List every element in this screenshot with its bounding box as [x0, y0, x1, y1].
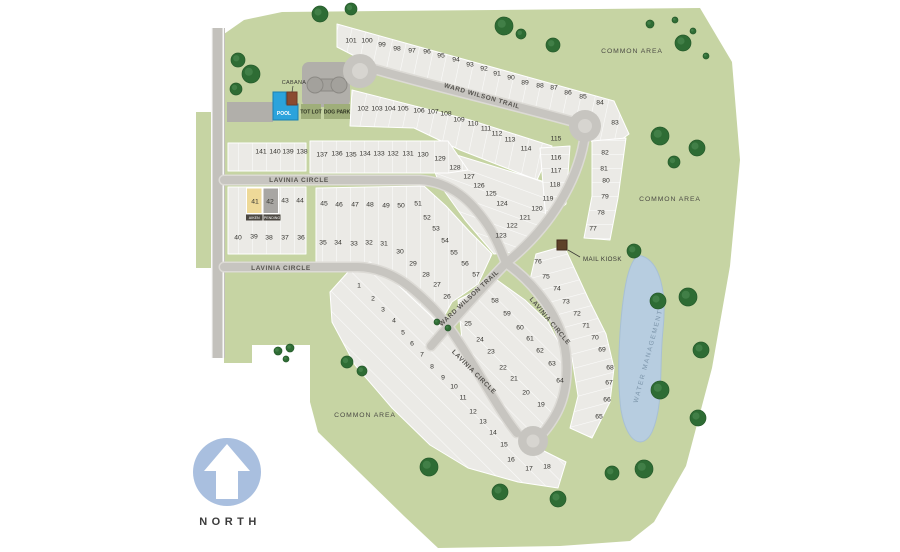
lot-number-130: 130: [417, 151, 429, 158]
lot-number-22: 22: [499, 364, 507, 371]
lot-number-89: 89: [521, 79, 529, 86]
lot-number-110: 110: [468, 120, 479, 127]
lot-number-109: 109: [453, 116, 465, 123]
lot-number-75: 75: [542, 273, 550, 280]
lot-number-83: 83: [611, 119, 619, 126]
lot-number-56: 56: [461, 260, 469, 267]
lot-number-63: 63: [548, 360, 556, 367]
tree-icon: [550, 491, 566, 507]
lot-number-134: 134: [359, 150, 371, 157]
mail-kiosk-icon: [557, 240, 567, 250]
tree-icon: [689, 140, 705, 156]
tree-icon: [627, 244, 641, 258]
lot-number-69: 69: [598, 346, 606, 353]
lot-41-tag-label: AIKEN: [249, 216, 260, 220]
lot-number-107: 107: [427, 108, 439, 115]
lot-number-5: 5: [401, 329, 405, 336]
lot-number-103: 103: [371, 105, 383, 112]
lot-number-9: 9: [441, 374, 445, 381]
lot-number-21: 21: [510, 375, 518, 382]
lot-number-12: 12: [469, 408, 477, 415]
lot-number-68: 68: [606, 364, 614, 371]
site-plan-svg: AIKEN PENDING WATER MANAGEMENT POOL CABA…: [0, 0, 900, 552]
lot-number-32: 32: [365, 239, 373, 246]
lot-number-136: 136: [331, 150, 343, 157]
lot-number-57: 57: [472, 271, 480, 278]
tree-icon: [341, 356, 353, 368]
lot-number-67: 67: [605, 379, 613, 386]
tree-icon: [651, 381, 669, 399]
tot-lot-label: TOT LOT: [300, 110, 321, 116]
lavinia-circle-label-upper: LAVINIA CIRCLE: [269, 177, 329, 184]
lot-number-48: 48: [366, 201, 374, 208]
lot-number-3: 3: [381, 306, 385, 313]
lot-number-65: 65: [595, 413, 603, 420]
lot-number-20: 20: [522, 389, 530, 396]
lot-number-38: 38: [265, 234, 273, 241]
lot-number-93: 93: [466, 61, 474, 68]
lot-number-138: 138: [296, 148, 308, 155]
lot-number-99: 99: [378, 41, 386, 48]
lot-number-113: 113: [505, 136, 516, 143]
lot-number-40: 40: [234, 234, 242, 241]
lot-number-94: 94: [452, 56, 460, 63]
tree-icon: [635, 460, 653, 478]
clubhouse-building: [307, 77, 347, 93]
lot-number-125: 125: [485, 190, 497, 197]
lot-number-47: 47: [351, 201, 359, 208]
lot-number-120: 120: [531, 205, 543, 212]
dog-park-label: DOG PARK: [324, 110, 351, 116]
tree-icon: [445, 325, 451, 331]
lot-number-137: 137: [316, 151, 328, 158]
tree-icon: [286, 344, 294, 352]
lot-number-84: 84: [596, 99, 604, 106]
lot-number-132: 132: [387, 150, 399, 157]
lot-number-92: 92: [480, 65, 488, 72]
lot-number-86: 86: [564, 89, 572, 96]
common-area-label-bottom: COMMON AREA: [334, 412, 396, 419]
north-compass: NORTH: [193, 438, 261, 528]
lot-number-115: 115: [551, 135, 562, 142]
tree-icon: [231, 53, 245, 67]
mail-kiosk-label: MAIL KIOSK: [583, 256, 622, 263]
lot-number-26: 26: [443, 293, 451, 300]
lot-number-58: 58: [491, 297, 499, 304]
lot-number-19: 19: [537, 401, 545, 408]
lot-number-17: 17: [525, 465, 533, 472]
lot-number-140: 140: [269, 148, 281, 155]
tree-icon: [312, 6, 328, 22]
lot-number-100: 100: [361, 37, 373, 44]
lot-number-116: 116: [551, 154, 562, 161]
lavinia-circle-label-lower: LAVINIA CIRCLE: [251, 265, 311, 272]
lot-number-18: 18: [543, 463, 551, 470]
lot-number-41: 41: [251, 198, 259, 205]
tree-icon: [230, 83, 242, 95]
lot-number-53: 53: [432, 225, 440, 232]
north-label: NORTH: [199, 516, 261, 528]
lot-number-29: 29: [409, 260, 417, 267]
lot-number-108: 108: [440, 110, 452, 117]
lot-number-96: 96: [423, 48, 431, 55]
lot-number-49: 49: [382, 202, 390, 209]
lot-number-4: 4: [392, 317, 396, 324]
tree-icon: [274, 347, 282, 355]
lot-number-127: 127: [463, 173, 475, 180]
lot-number-43: 43: [281, 197, 289, 204]
lot-number-139: 139: [282, 148, 294, 155]
lot-number-128: 128: [449, 164, 461, 171]
lot-number-98: 98: [393, 45, 401, 52]
lot-number-104: 104: [384, 105, 396, 112]
lot-number-91: 91: [493, 70, 501, 77]
tree-icon: [668, 156, 680, 168]
tree-icon: [693, 342, 709, 358]
tree-icon: [675, 35, 691, 51]
lot-number-27: 27: [433, 281, 441, 288]
lot-number-61: 61: [526, 335, 534, 342]
lot-number-123: 123: [495, 232, 507, 239]
tree-icon: [345, 3, 357, 15]
lot-number-85: 85: [579, 93, 587, 100]
lot-number-126: 126: [473, 182, 485, 189]
lot-number-117: 117: [551, 167, 562, 174]
lot-number-8: 8: [430, 363, 434, 370]
lot-number-62: 62: [536, 347, 544, 354]
green-strip: [307, 185, 316, 255]
lot-number-90: 90: [507, 74, 515, 81]
lot-number-15: 15: [500, 441, 508, 448]
pool-label: POOL: [277, 111, 291, 117]
lot-number-2: 2: [371, 295, 375, 302]
tree-icon: [690, 28, 696, 34]
lot-number-36: 36: [297, 234, 305, 241]
lot-42-tag-label: PENDING: [264, 216, 281, 220]
lot-number-33: 33: [350, 240, 358, 247]
lot-number-30: 30: [396, 248, 404, 255]
lot-number-66: 66: [603, 396, 611, 403]
lot-number-95: 95: [437, 52, 445, 59]
tree-icon: [650, 293, 666, 309]
lot-number-46: 46: [335, 201, 343, 208]
tree-icon: [646, 20, 654, 28]
tree-icon: [492, 484, 508, 500]
lot-number-88: 88: [536, 82, 544, 89]
cabana-building: [287, 92, 297, 105]
site-plan: AIKEN PENDING WATER MANAGEMENT POOL CABA…: [0, 0, 900, 552]
tree-icon: [516, 29, 526, 39]
lot-number-141: 141: [255, 148, 267, 155]
lot-number-23: 23: [487, 348, 495, 355]
tree-icon: [651, 127, 669, 145]
lot-number-25: 25: [464, 320, 472, 327]
tree-icon: [703, 53, 709, 59]
lot-number-54: 54: [441, 237, 449, 244]
tree-icon: [242, 65, 260, 83]
lot-number-122: 122: [506, 222, 518, 229]
lot-number-39: 39: [250, 233, 258, 240]
water-management-pond: [619, 256, 664, 442]
parking-area: [227, 102, 273, 122]
lot-number-52: 52: [423, 214, 431, 221]
lot-number-102: 102: [357, 105, 369, 112]
lot-number-55: 55: [450, 249, 458, 256]
lot-number-11: 11: [459, 394, 466, 401]
tree-icon: [283, 356, 289, 362]
lot-number-60: 60: [516, 324, 524, 331]
lot-number-13: 13: [479, 418, 487, 425]
lot-number-133: 133: [373, 150, 385, 157]
lot-number-10: 10: [450, 383, 458, 390]
lot-number-87: 87: [550, 84, 558, 91]
lot-number-70: 70: [591, 334, 599, 341]
tree-icon: [690, 410, 706, 426]
tree-icon: [357, 366, 367, 376]
lot-number-59: 59: [503, 310, 511, 317]
lot-number-78: 78: [597, 209, 605, 216]
lot-number-77: 77: [589, 225, 597, 232]
lot-number-124: 124: [496, 200, 508, 207]
tree-icon: [420, 458, 438, 476]
tree-icon: [672, 17, 678, 23]
tree-icon: [495, 17, 513, 35]
lot-number-28: 28: [422, 271, 430, 278]
lot-number-112: 112: [492, 130, 503, 137]
lot-number-135: 135: [345, 151, 357, 158]
lot-number-50: 50: [397, 202, 405, 209]
lot-number-7: 7: [420, 351, 424, 358]
lot-number-64: 64: [556, 377, 564, 384]
lot-number-35: 35: [319, 239, 327, 246]
lot-number-101: 101: [345, 37, 357, 44]
lot-number-97: 97: [408, 47, 416, 54]
lot-number-74: 74: [553, 285, 561, 292]
lot-number-106: 106: [413, 107, 425, 114]
lot-number-24: 24: [476, 336, 484, 343]
lot-number-118: 118: [550, 181, 561, 188]
lot-number-44: 44: [296, 197, 304, 204]
lot-number-121: 121: [519, 214, 531, 221]
lot-number-34: 34: [334, 239, 342, 246]
lot-number-105: 105: [397, 105, 409, 112]
lot-number-72: 72: [573, 310, 581, 317]
lot-number-14: 14: [489, 429, 497, 436]
lot-number-131: 131: [402, 150, 414, 157]
lot-number-80: 80: [602, 177, 610, 184]
lot-number-51: 51: [414, 200, 422, 207]
lot-number-16: 16: [507, 456, 515, 463]
tree-icon: [679, 288, 697, 306]
common-area-label-top: COMMON AREA: [601, 48, 663, 55]
lot-number-79: 79: [601, 193, 609, 200]
lot-number-114: 114: [521, 145, 532, 152]
lot-number-37: 37: [281, 234, 289, 241]
lot-number-111: 111: [481, 125, 492, 132]
lot-number-119: 119: [543, 195, 554, 202]
lot-number-73: 73: [562, 298, 570, 305]
lot-number-31: 31: [380, 240, 388, 247]
lot-number-71: 71: [582, 322, 590, 329]
cabana-label: CABANA: [282, 80, 306, 86]
lot-number-45: 45: [320, 200, 328, 207]
lot-number-81: 81: [600, 165, 608, 172]
lot-number-129: 129: [434, 155, 446, 162]
lot-number-82: 82: [601, 149, 609, 156]
lot-number-42: 42: [266, 198, 274, 205]
common-area-label-right: COMMON AREA: [639, 196, 701, 203]
lot-number-1: 1: [357, 282, 361, 289]
tree-icon: [605, 466, 619, 480]
lot-number-6: 6: [410, 340, 414, 347]
tree-icon: [546, 38, 560, 52]
lot-number-76: 76: [534, 258, 542, 265]
